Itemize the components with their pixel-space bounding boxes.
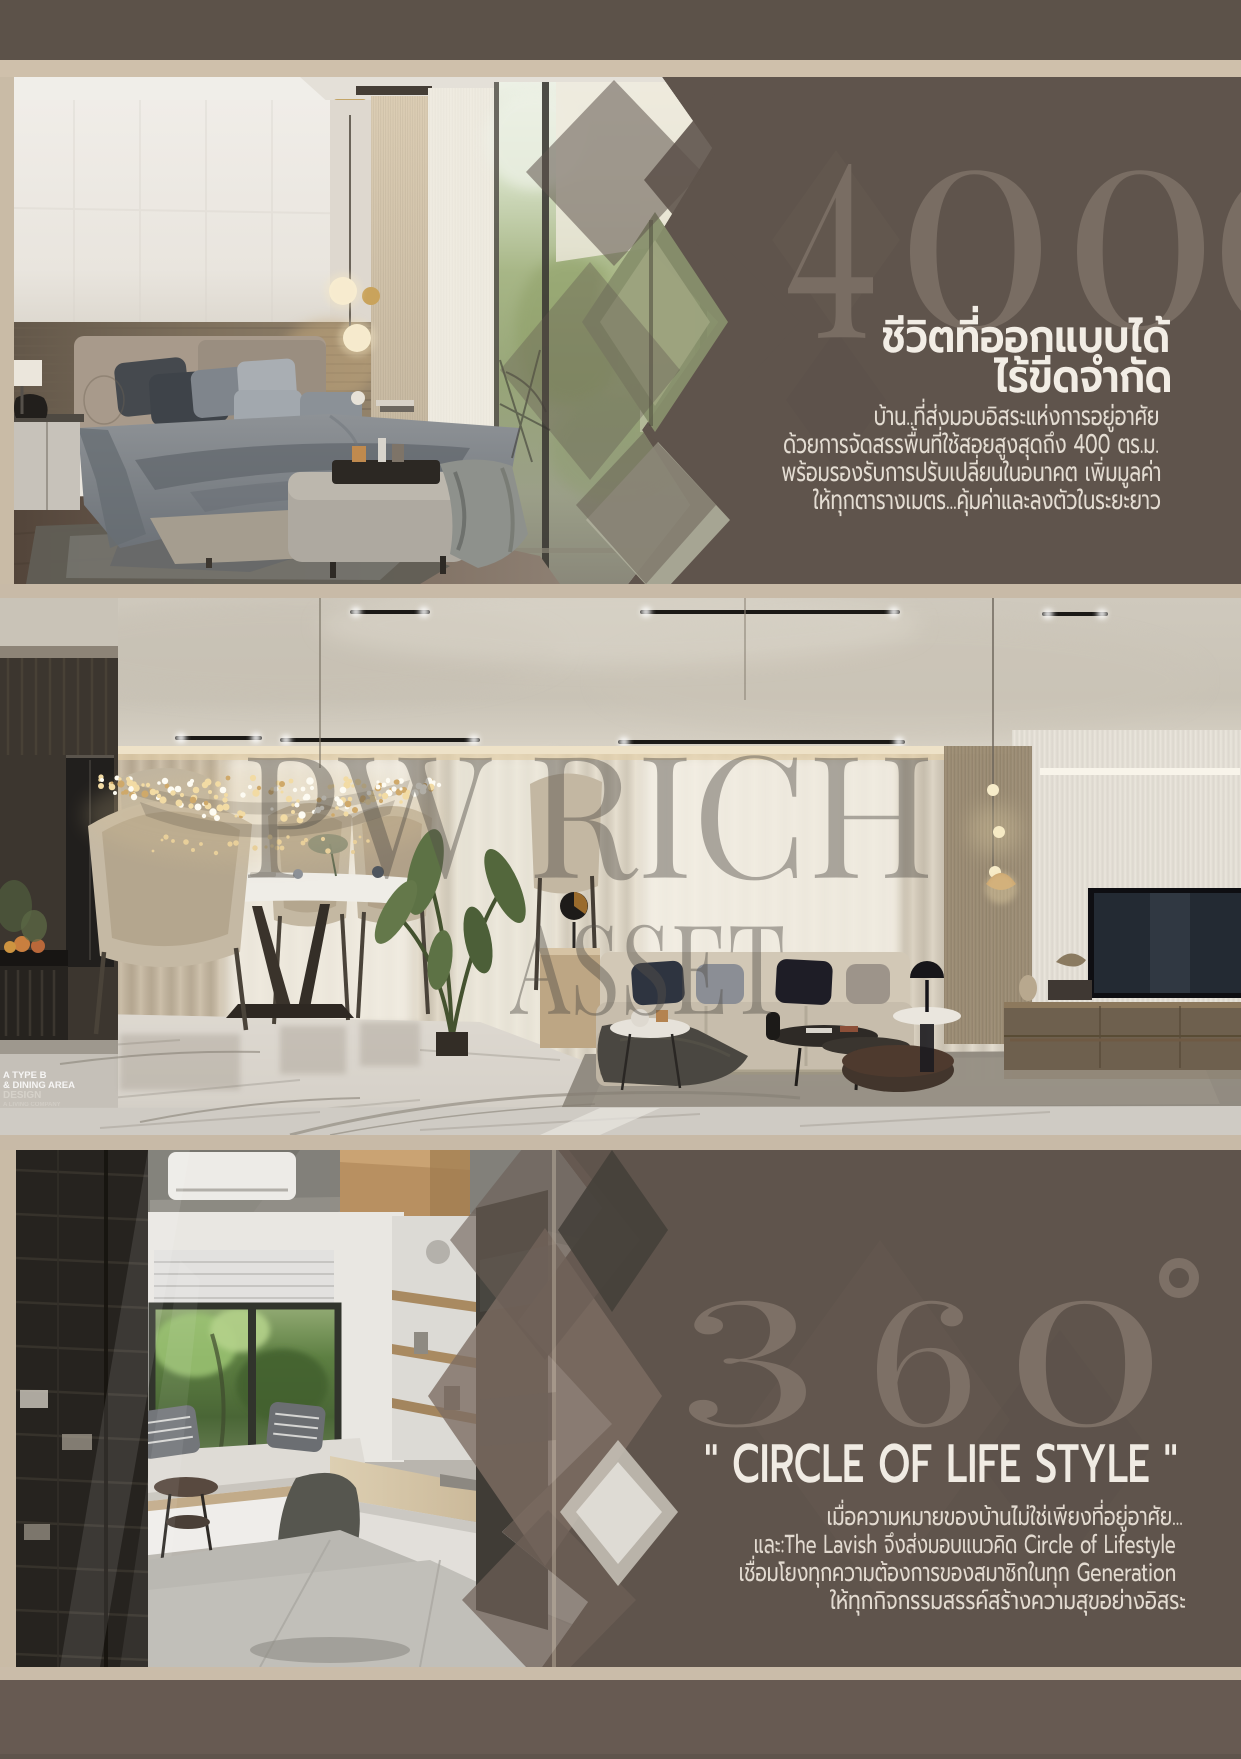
svg-text:A LIVING COMPANY: A LIVING COMPANY (3, 1102, 61, 1108)
svg-text:DESIGN: DESIGN (3, 1090, 41, 1101)
